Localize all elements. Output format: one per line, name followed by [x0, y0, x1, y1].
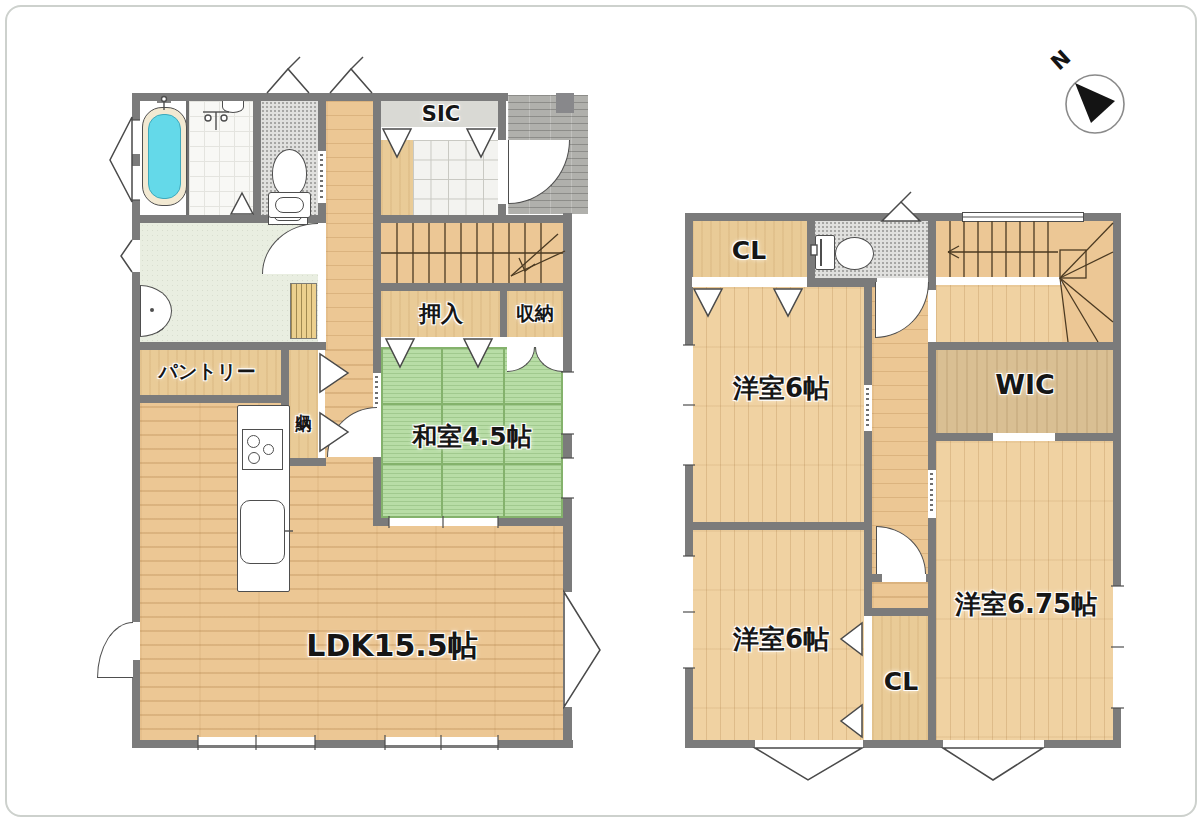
- window: [1113, 586, 1121, 708]
- burner-icon: [247, 435, 260, 448]
- door-opening: [132, 622, 140, 660]
- window: [132, 166, 140, 200]
- window: [755, 740, 863, 748]
- wall: [685, 522, 872, 530]
- entry-step-floor: [381, 140, 413, 218]
- roof-chevron-tail: [351, 57, 363, 69]
- roof-chevron-tail: [901, 192, 911, 202]
- floor-plan-canvas: SIC 押入 収納 収納 パントリー 和室4.5帖 LDK15.5帖: [0, 0, 1200, 820]
- bay-window-mark: [943, 748, 1043, 780]
- bath-counter-icon: [222, 101, 244, 113]
- compass-north-label: N: [1046, 45, 1075, 75]
- toilet-bowl-icon: [272, 149, 307, 197]
- sink-drain: [150, 308, 154, 312]
- wall: [373, 93, 381, 291]
- tatami-grid-line: [381, 463, 563, 465]
- burner-icon: [248, 452, 260, 464]
- window: [132, 120, 140, 154]
- wall: [807, 213, 815, 287]
- door-opening: [993, 433, 1055, 441]
- sliding-door-hatch: [866, 388, 869, 428]
- window: [962, 212, 1084, 222]
- wall: [132, 395, 289, 403]
- room-label-pantry: パントリー: [159, 359, 256, 385]
- wall: [685, 740, 1121, 748]
- bathtub-water: [148, 114, 181, 199]
- bay-window-mark: [755, 748, 862, 780]
- room-label-wic: WIC: [995, 369, 1055, 400]
- room-label-oshiire: 押入: [419, 299, 463, 329]
- door-opening: [318, 223, 326, 273]
- room-label-storage-kitchen: 収納: [293, 401, 314, 405]
- window: [943, 740, 1044, 748]
- closet-door-track: [692, 277, 807, 287]
- room-label-japanese-room: 和室4.5帖: [412, 420, 531, 453]
- wall: [381, 283, 563, 291]
- toilet2f-bowl-icon: [835, 237, 874, 270]
- roof-chevron-mark: [330, 69, 372, 93]
- window: [685, 556, 693, 668]
- sliding-door-hatch: [320, 154, 323, 200]
- door-opening: [498, 140, 506, 204]
- porch-pillar: [556, 93, 574, 113]
- genkan-tile-floor: [413, 140, 498, 218]
- toilet2f-tank-line: [820, 239, 822, 266]
- stair-landing-edge: [936, 277, 1062, 285]
- hallway-floor: [326, 101, 373, 223]
- window: [685, 345, 693, 465]
- wall: [864, 287, 872, 616]
- window: [563, 372, 572, 434]
- room-label-ldk: LDK15.5帖: [306, 626, 477, 667]
- bay-window-mark: [110, 117, 132, 202]
- room-label-storage: 収納: [516, 301, 554, 327]
- closet-door-track: [864, 620, 872, 738]
- wall: [253, 93, 261, 223]
- room-label-bedroom-right: 洋室6.75帖: [955, 587, 1097, 622]
- wall: [132, 342, 326, 350]
- closet-door-track: [381, 337, 563, 347]
- window: [563, 458, 572, 498]
- wall: [500, 291, 507, 337]
- door-opening: [882, 574, 926, 582]
- stair-hall-floor: [936, 285, 1062, 342]
- north-arrow-icon: N: [1040, 40, 1132, 140]
- room-label-bedroom-top: 洋室6帖: [733, 371, 829, 406]
- staircase-1f: [381, 223, 563, 283]
- sliding-door-hatch: [375, 376, 378, 406]
- window: [132, 240, 140, 272]
- closet-door-track: [318, 350, 325, 458]
- wall: [381, 215, 563, 223]
- compass: N: [1040, 40, 1132, 140]
- room-label-sic: SIC: [422, 102, 460, 126]
- window: [385, 737, 498, 745]
- tatami-grid-line: [381, 403, 563, 405]
- sic-door-track: [381, 127, 498, 140]
- wall: [928, 342, 1121, 350]
- window-chevron-mark: [121, 240, 132, 272]
- toilet2f-tank-icon: [815, 235, 835, 270]
- roof-chevron-mark: [267, 69, 309, 93]
- burner-icon: [263, 444, 274, 455]
- sliding-door-hatch: [930, 473, 933, 515]
- toilet-tank-inner: [275, 197, 304, 213]
- wall: [928, 213, 936, 290]
- linen-shelf-icon: [290, 283, 317, 339]
- hallway2f-floor: [872, 582, 928, 608]
- back-door-arc: [97, 622, 133, 678]
- window: [563, 592, 572, 707]
- room-label-closet-bottom: CL: [884, 667, 918, 696]
- kitchen-sink-icon: [240, 500, 285, 564]
- wall: [928, 350, 936, 740]
- wall: [807, 278, 877, 287]
- wall: [864, 608, 934, 616]
- window: [198, 737, 315, 745]
- room-label-closet-top: CL: [732, 236, 766, 265]
- shower-room-floor: [189, 101, 253, 215]
- roof-chevron-tail: [288, 57, 300, 69]
- compass-arrow: [1075, 83, 1115, 123]
- room-label-bedroom-bottom: 洋室6帖: [733, 622, 829, 657]
- sliding-door-opening: [389, 518, 498, 526]
